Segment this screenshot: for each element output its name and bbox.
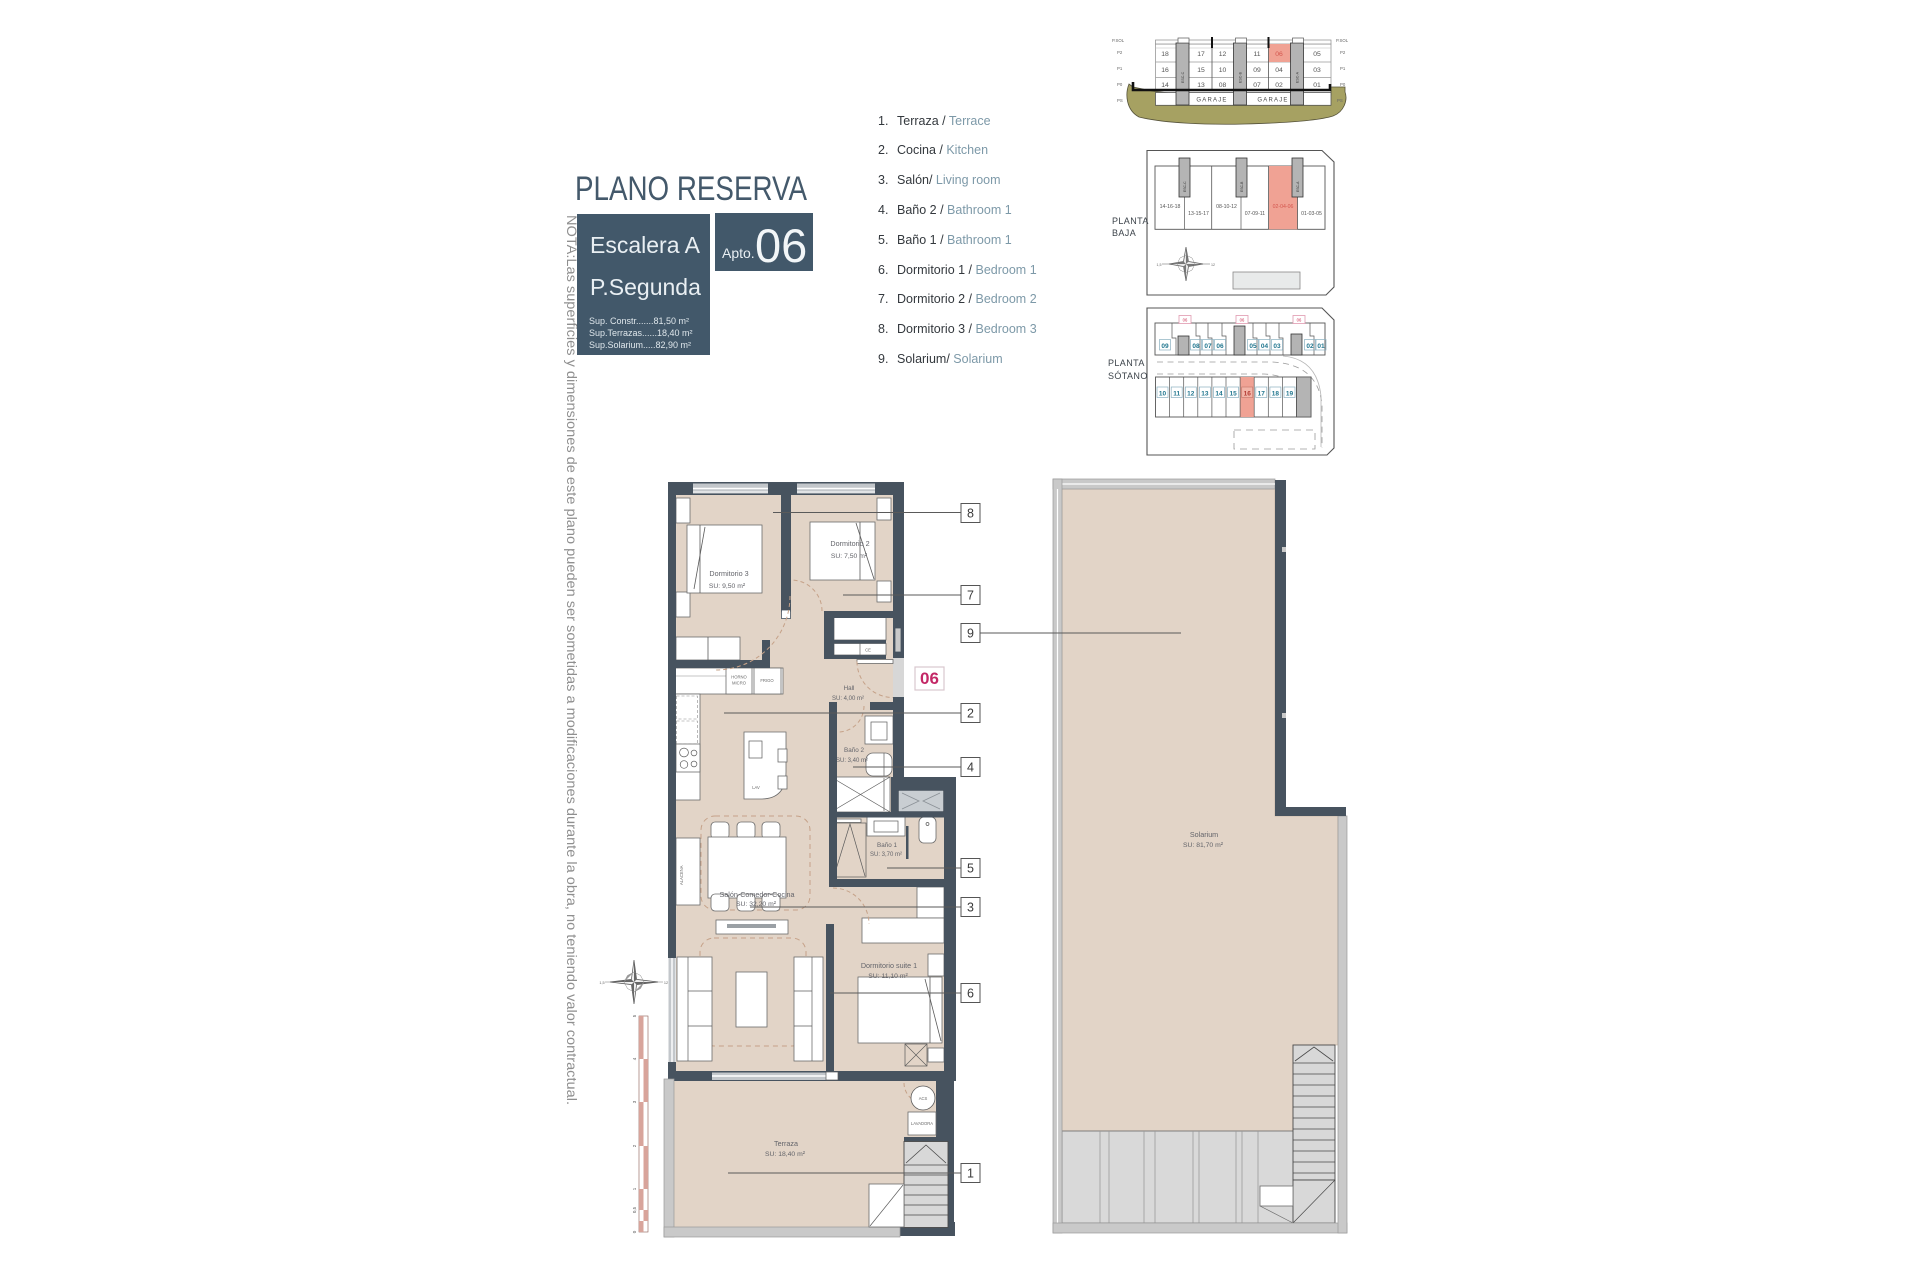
svg-text:12: 12 [1187, 391, 1195, 398]
svg-text:19: 19 [1286, 391, 1294, 398]
svg-text:06: 06 [1183, 318, 1188, 323]
svg-text:06: 06 [1240, 318, 1245, 323]
svg-text:02: 02 [1306, 343, 1314, 350]
svg-text:P2: P2 [1340, 50, 1346, 55]
svg-text:05: 05 [1249, 343, 1257, 350]
svg-text:12: 12 [1219, 51, 1227, 58]
svg-text:6: 6 [967, 987, 974, 1001]
svg-text:12: 12 [1211, 263, 1215, 267]
svg-text:03: 03 [1273, 343, 1281, 350]
svg-text:SU: 11,10 m²: SU: 11,10 m² [868, 973, 908, 980]
svg-text:SU: 7,50 m²: SU: 7,50 m² [831, 553, 868, 560]
svg-text:P.SOL: P.SOL [1336, 38, 1349, 43]
svg-text:7.: 7. [878, 292, 888, 306]
svg-text:SU: 4,00 m²: SU: 4,00 m² [832, 696, 864, 702]
svg-text:01: 01 [1313, 82, 1321, 89]
svg-text:13: 13 [1201, 391, 1209, 398]
svg-text:08: 08 [1192, 343, 1200, 350]
svg-text:FRIGO: FRIGO [760, 678, 774, 683]
svg-text:11: 11 [1253, 51, 1260, 58]
svg-text:Dormitorio 2: Dormitorio 2 [830, 539, 869, 548]
svg-text:PS: PS [1117, 98, 1123, 103]
svg-text:1: 1 [967, 1167, 974, 1181]
svg-text:Solarium/ Solarium: Solarium/ Solarium [897, 352, 1003, 366]
svg-text:8.: 8. [878, 322, 888, 336]
svg-text:ESC-B: ESC-B [1240, 181, 1244, 192]
svg-text:17: 17 [1258, 391, 1266, 398]
svg-text:06: 06 [1297, 318, 1302, 323]
svg-text:15: 15 [1229, 391, 1237, 398]
svg-text:0,5: 0,5 [632, 1206, 637, 1213]
svg-text:Baño 1: Baño 1 [877, 842, 897, 849]
svg-text:Sup. Constr.......81,50 m²: Sup. Constr.......81,50 m² [589, 316, 689, 326]
svg-text:PS: PS [1337, 98, 1343, 103]
svg-text:06: 06 [1216, 343, 1224, 350]
svg-text:HORNO: HORNO [731, 675, 747, 680]
svg-text:1.: 1. [878, 114, 888, 128]
svg-text:ESC-C: ESC-C [1183, 181, 1187, 192]
svg-text:Cocina / Kitchen: Cocina / Kitchen [897, 143, 988, 157]
svg-text:GARAJE: GARAJE [1196, 98, 1227, 104]
svg-text:Hall: Hall [844, 685, 855, 692]
svg-text:ESC-C: ESC-C [1181, 71, 1185, 83]
svg-text:1,5: 1,5 [599, 981, 604, 985]
svg-text:6.: 6. [878, 263, 888, 277]
svg-text:Sup.Solarium.....82,90 m²: Sup.Solarium.....82,90 m² [589, 340, 691, 350]
svg-text:Salón/ Living room: Salón/ Living room [897, 173, 1001, 187]
svg-text:06: 06 [755, 219, 807, 272]
svg-text:04: 04 [1261, 343, 1269, 350]
svg-text:P0: P0 [1117, 82, 1123, 87]
svg-text:CE: CE [865, 648, 871, 653]
svg-text:ESC-A: ESC-A [1296, 71, 1300, 83]
svg-text:Dormitorio 3: Dormitorio 3 [709, 569, 748, 578]
svg-text:SU: 9,50 m²: SU: 9,50 m² [709, 583, 746, 590]
svg-text:01: 01 [1317, 343, 1325, 350]
svg-text:10: 10 [1159, 391, 1167, 398]
svg-text:Terraza / Terrace: Terraza / Terrace [897, 114, 991, 128]
svg-text:SU: 3,70 m²: SU: 3,70 m² [870, 852, 902, 858]
svg-text:NOTA:Las superficies y dimensi: NOTA:Las superficies y dimensiones de es… [564, 215, 579, 1105]
svg-text:Salón-Comedor-Cocina: Salón-Comedor-Cocina [719, 890, 794, 899]
svg-text:P.SOL: P.SOL [1112, 38, 1125, 43]
svg-text:07: 07 [1204, 343, 1212, 350]
svg-text:13: 13 [1197, 82, 1205, 89]
svg-text:08: 08 [1219, 82, 1227, 89]
svg-text:Dormitorio 2 / Bedroom 2: Dormitorio 2 / Bedroom 2 [897, 292, 1037, 306]
svg-text:SU: 81,70 m²: SU: 81,70 m² [1183, 842, 1224, 849]
svg-text:ESC-B: ESC-B [1239, 71, 1243, 83]
svg-text:07: 07 [1253, 82, 1261, 89]
svg-text:13-15-17: 13-15-17 [1188, 211, 1209, 217]
svg-text:4: 4 [967, 761, 974, 775]
svg-text:3: 3 [967, 901, 974, 915]
svg-text:Escalera A: Escalera A [590, 232, 701, 258]
svg-text:14: 14 [1161, 82, 1169, 89]
svg-text:SU: 3,40 m²: SU: 3,40 m² [836, 758, 868, 764]
svg-text:09: 09 [1253, 67, 1261, 74]
svg-text:02-04-06: 02-04-06 [1273, 204, 1294, 210]
svg-text:18: 18 [1161, 51, 1169, 58]
svg-text:Baño 1 / Bathroom 1: Baño 1 / Bathroom 1 [897, 233, 1012, 247]
svg-text:2: 2 [967, 707, 974, 721]
svg-text:ESC-A: ESC-A [1296, 181, 1300, 192]
svg-text:14-16-18: 14-16-18 [1160, 204, 1181, 210]
svg-text:Dormitorio 1 / Bedroom 1: Dormitorio 1 / Bedroom 1 [897, 263, 1037, 277]
svg-text:Apto.: Apto. [722, 245, 755, 261]
svg-text:MICRO: MICRO [732, 681, 747, 686]
svg-text:8: 8 [967, 507, 974, 521]
svg-text:P0: P0 [1340, 82, 1346, 87]
svg-text:1,5: 1,5 [1157, 263, 1162, 267]
svg-text:01-03-05: 01-03-05 [1301, 211, 1322, 217]
svg-text:P.Segunda: P.Segunda [590, 274, 701, 300]
svg-text:P2: P2 [1117, 50, 1123, 55]
svg-text:ACS: ACS [919, 1096, 928, 1101]
svg-text:BAJA: BAJA [1112, 228, 1136, 238]
svg-text:LAV: LAV [752, 785, 760, 790]
svg-text:3.: 3. [878, 173, 888, 187]
svg-text:11: 11 [1173, 391, 1180, 398]
svg-text:06: 06 [920, 669, 939, 688]
svg-text:04: 04 [1275, 67, 1283, 74]
svg-text:9: 9 [967, 627, 974, 641]
svg-text:5: 5 [967, 862, 974, 876]
svg-text:02: 02 [1275, 82, 1283, 89]
svg-text:LAVADORA: LAVADORA [911, 1121, 933, 1126]
svg-text:ALACENA: ALACENA [679, 865, 684, 885]
svg-text:17: 17 [1197, 51, 1205, 58]
svg-text:4.: 4. [878, 203, 888, 217]
svg-text:P1: P1 [1117, 66, 1123, 71]
svg-text:P1: P1 [1340, 66, 1346, 71]
svg-text:18: 18 [1272, 391, 1280, 398]
svg-text:07-09-11: 07-09-11 [1245, 211, 1265, 217]
svg-text:SU: 18,40 m²: SU: 18,40 m² [765, 1151, 806, 1158]
svg-text:PLANO RESERVA: PLANO RESERVA [575, 170, 807, 208]
svg-text:09: 09 [1161, 343, 1169, 350]
svg-text:03: 03 [1313, 67, 1321, 74]
svg-text:Sup.Terrazas......18,40 m²: Sup.Terrazas......18,40 m² [589, 328, 693, 338]
svg-text:PLANTA: PLANTA [1108, 358, 1145, 368]
svg-text:15: 15 [1197, 67, 1205, 74]
svg-text:06: 06 [1275, 51, 1283, 58]
svg-text:10: 10 [1219, 67, 1227, 74]
svg-text:16: 16 [1161, 67, 1169, 74]
svg-text:Dormitorio suite 1: Dormitorio suite 1 [861, 961, 917, 970]
svg-text:14: 14 [1215, 391, 1223, 398]
svg-text:GARAJE: GARAJE [1257, 98, 1288, 104]
svg-text:05: 05 [1313, 51, 1321, 58]
svg-text:Dormitorio 3 / Bedroom 3: Dormitorio 3 / Bedroom 3 [897, 322, 1037, 336]
svg-text:SÓTANO: SÓTANO [1108, 371, 1148, 381]
svg-text:16: 16 [1244, 391, 1252, 398]
svg-text:08-10-12: 08-10-12 [1216, 204, 1237, 210]
svg-text:Solarium: Solarium [1190, 830, 1218, 839]
svg-text:9.: 9. [878, 352, 888, 366]
svg-text:Baño 2 / Bathroom 1: Baño 2 / Bathroom 1 [897, 203, 1012, 217]
svg-text:12: 12 [664, 981, 668, 985]
svg-text:Terraza: Terraza [774, 1139, 798, 1148]
svg-text:Baño 2: Baño 2 [844, 747, 864, 754]
svg-text:5.: 5. [878, 233, 888, 247]
svg-text:7: 7 [967, 589, 974, 603]
svg-text:PLANTA: PLANTA [1112, 216, 1149, 226]
svg-text:2.: 2. [878, 143, 888, 157]
